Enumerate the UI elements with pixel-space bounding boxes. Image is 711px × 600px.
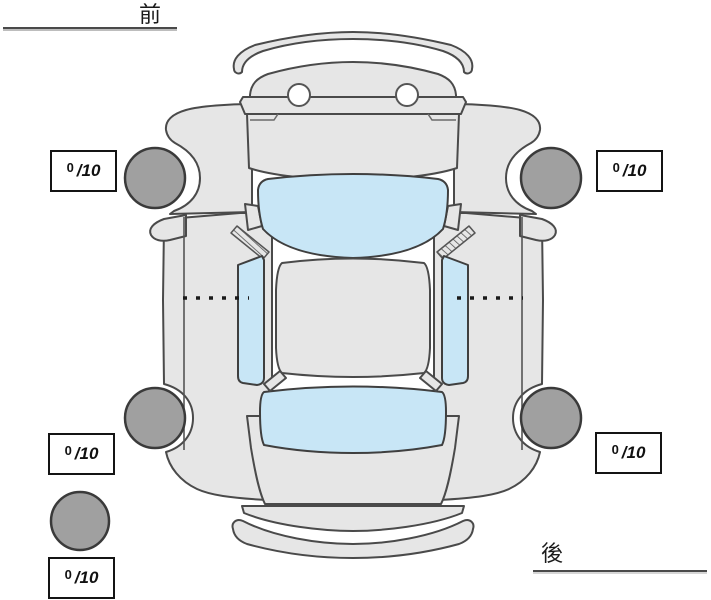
tire-rear-left bbox=[125, 388, 185, 448]
tire-rear-right bbox=[521, 388, 581, 448]
tire-front-left bbox=[125, 148, 185, 208]
side-window-right bbox=[442, 256, 468, 385]
rating-max: /10 bbox=[75, 568, 99, 588]
rating-value: 0 bbox=[67, 160, 74, 175]
rating-value: 0 bbox=[65, 567, 72, 582]
rating-value: 0 bbox=[612, 442, 619, 457]
tire-front-right bbox=[521, 148, 581, 208]
rating-front-right: 0 /10 bbox=[596, 150, 663, 192]
car-top-view bbox=[0, 0, 711, 600]
headlight-right bbox=[396, 84, 418, 106]
roof bbox=[276, 259, 430, 378]
rear-bumper bbox=[242, 506, 464, 531]
rating-spare: 0 /10 bbox=[48, 557, 115, 599]
front-label: 前 bbox=[139, 4, 161, 26]
vehicle-condition-diagram: 前 後 0 /10 0 /10 0 /10 0 /10 0 /10 bbox=[0, 0, 711, 600]
rating-max: /10 bbox=[75, 444, 99, 464]
hood bbox=[247, 114, 459, 180]
front-underline bbox=[3, 27, 177, 29]
rating-max: /10 bbox=[622, 443, 646, 463]
right-side-mirror bbox=[520, 215, 556, 241]
side-window-left bbox=[238, 256, 264, 385]
windshield bbox=[258, 174, 448, 258]
rating-front-left: 0 /10 bbox=[50, 150, 117, 192]
left-side-mirror bbox=[150, 215, 186, 241]
front-panel bbox=[240, 97, 466, 114]
rating-rear-left: 0 /10 bbox=[48, 433, 115, 475]
rear-label: 後 bbox=[541, 543, 563, 565]
rating-max: /10 bbox=[77, 161, 101, 181]
spare-tire bbox=[51, 492, 109, 550]
rating-value: 0 bbox=[65, 443, 72, 458]
headlight-left bbox=[288, 84, 310, 106]
rating-rear-right: 0 /10 bbox=[595, 432, 662, 474]
front-bumper bbox=[250, 62, 456, 97]
rear-window bbox=[260, 387, 446, 454]
rating-value: 0 bbox=[613, 160, 620, 175]
rating-max: /10 bbox=[623, 161, 647, 181]
rear-underline bbox=[533, 570, 707, 572]
